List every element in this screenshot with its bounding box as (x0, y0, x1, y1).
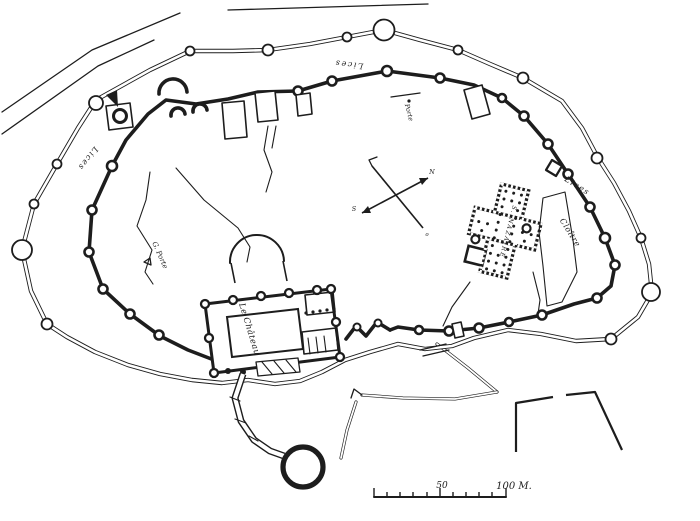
inner-tower (600, 233, 610, 243)
grande-porte-mark (144, 258, 151, 265)
castle-tower (205, 334, 213, 342)
street (264, 126, 272, 192)
city-plan-map: Porte Le Château S. NAZAIRE (0, 0, 700, 521)
compass-letter-n: N (428, 168, 435, 176)
sketch-line (516, 397, 553, 452)
scale-bar: 50 100 M. (374, 481, 532, 497)
label-porte-north: Porte (403, 102, 416, 122)
inner-tower (611, 261, 620, 270)
inner-tower (436, 74, 445, 83)
castle-tower (201, 300, 209, 308)
castle-tower (257, 292, 265, 300)
inner-tower (475, 324, 484, 333)
inner-tower (107, 161, 117, 171)
exterior-roads (2, 4, 497, 458)
east-gate-block (452, 322, 464, 338)
building (222, 101, 247, 139)
outer-tower (343, 33, 352, 42)
road-hook (351, 389, 362, 398)
street (137, 172, 153, 284)
outer-tower (374, 20, 395, 41)
inner-tower (85, 248, 94, 257)
inner-tower (415, 326, 423, 334)
outer-tower (606, 334, 617, 345)
column-dot (332, 307, 335, 310)
column-dot (304, 311, 307, 314)
outer-tower (454, 46, 463, 55)
column-dot (311, 310, 314, 313)
cloister-outline: Cloître (539, 192, 582, 306)
label-lices-right: Lices (562, 174, 592, 197)
inner-tower (520, 112, 529, 121)
inner-tower (544, 140, 553, 149)
outer-tower (637, 234, 646, 243)
column-dot (325, 308, 328, 311)
north-wall-buildings (222, 85, 490, 139)
outer-tower (518, 73, 529, 84)
inner-tower (505, 318, 513, 326)
compass-letter-o: o (425, 232, 429, 238)
barbican-stub (231, 263, 235, 283)
gate-tower (375, 320, 382, 327)
outer-tower (42, 319, 53, 330)
label-grande-porte: G. Porte (150, 240, 169, 270)
tower (114, 110, 127, 123)
inner-tower (99, 285, 108, 294)
outer-tower (30, 200, 39, 209)
castle-tower (313, 286, 321, 294)
outer-tower (89, 96, 103, 110)
east-gate-zigzag (346, 322, 390, 339)
unfinished-outline (516, 392, 622, 452)
horseshoe-tower (159, 79, 187, 94)
castle-tower (336, 353, 344, 361)
label-lices-top: Lices (334, 58, 365, 71)
sketch-line (566, 392, 622, 450)
inner-tower (126, 310, 135, 319)
barbican-arc (230, 235, 284, 263)
chateau-complex: Le Château (201, 235, 344, 377)
building (296, 93, 312, 116)
inner-tower (155, 331, 164, 340)
inner-tower (586, 203, 595, 212)
inner-wall-line (89, 166, 214, 360)
outer-tower (186, 47, 195, 56)
cloister-wall (539, 192, 577, 306)
label-lices-left: Lices (76, 144, 100, 172)
scale-mid-label: 50 (436, 481, 448, 491)
castle-courtyard (227, 309, 303, 357)
inner-tower (88, 206, 97, 215)
inner-tower (498, 94, 506, 102)
church-turret (471, 234, 481, 244)
inner-wall-line (112, 71, 615, 331)
compass-line (362, 178, 428, 213)
compass-letter-s: S (352, 205, 357, 213)
building (255, 91, 278, 122)
northwest-gate-tower (106, 90, 133, 130)
castle-tower (225, 368, 231, 374)
north-gate: Porte (391, 93, 420, 122)
compass-rose: N S o (352, 157, 435, 238)
castle-tower (332, 318, 340, 326)
castle-tower (285, 289, 293, 297)
inner-wall (85, 66, 620, 360)
castle-tower (327, 285, 335, 293)
outer-tower (263, 45, 274, 56)
street (176, 168, 250, 262)
outer-tower (592, 153, 603, 164)
outer-tower (642, 283, 660, 301)
scale-end-label: 100 M. (496, 481, 532, 492)
castle-tower (229, 296, 237, 304)
compass-line (372, 166, 423, 228)
barbican-tower (283, 447, 323, 487)
church-st-nazaire: S. NAZAIRE (460, 179, 548, 283)
street (533, 272, 540, 314)
inner-tower (382, 66, 392, 76)
outer-tower (12, 240, 32, 260)
barbican-stub (283, 261, 287, 281)
gate-tower (354, 324, 361, 331)
inner-tower (593, 294, 602, 303)
horseshoe-tower (171, 108, 185, 116)
street (272, 126, 276, 148)
gate-mark (391, 93, 420, 97)
horseshoe-tower (193, 104, 207, 112)
castle-tower (210, 369, 218, 377)
column-dot (318, 309, 321, 312)
compass-hook (369, 157, 377, 166)
road-line (228, 4, 428, 10)
outer-tower (53, 160, 62, 169)
street (443, 282, 470, 326)
inner-tower (328, 77, 337, 86)
barbican-corridor (230, 374, 323, 487)
